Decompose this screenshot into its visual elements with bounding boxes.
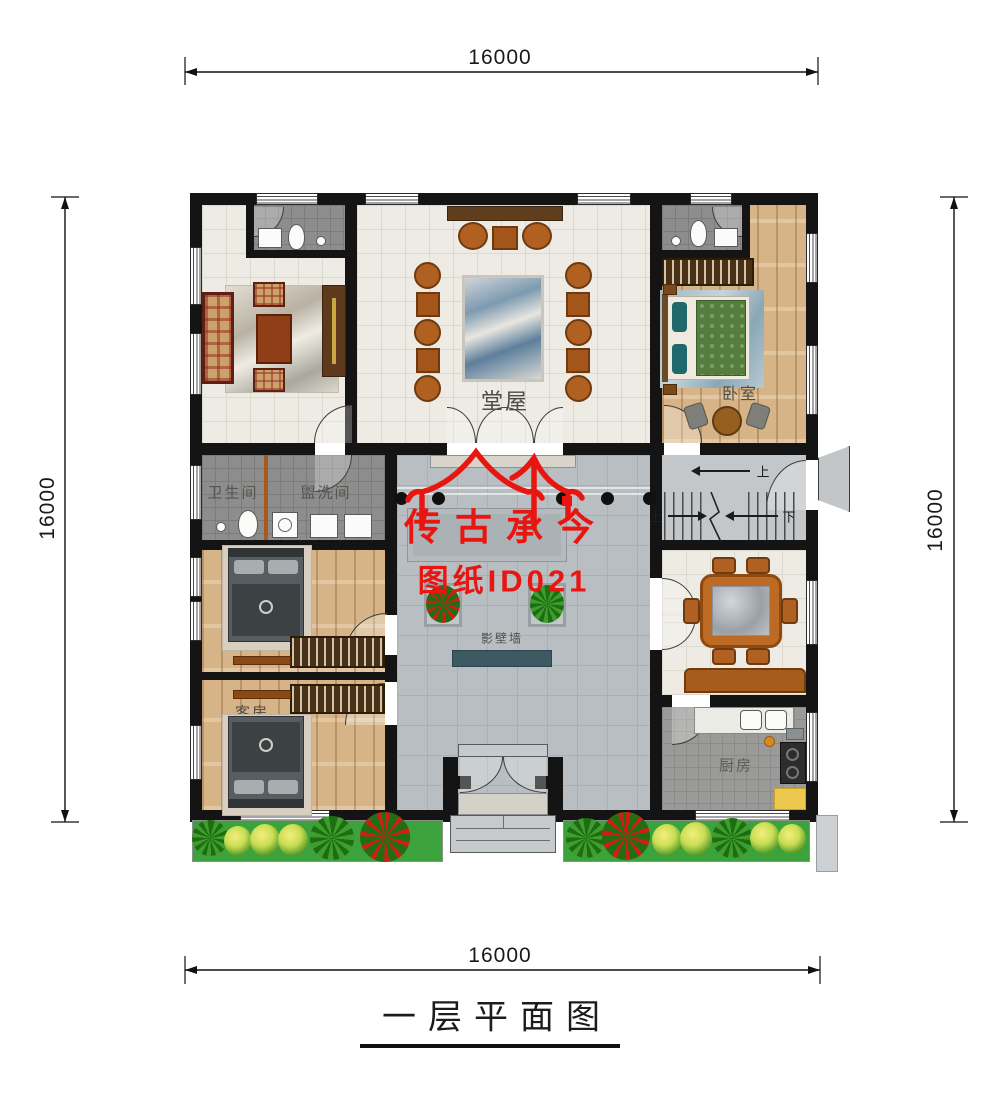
side-table	[416, 348, 440, 373]
pillow	[234, 560, 264, 574]
hall-rug	[462, 275, 544, 382]
plant-icon	[310, 816, 354, 860]
wall-mid-1	[190, 443, 315, 455]
kitchen-mat	[774, 788, 806, 810]
dim-left-value: 16000	[36, 476, 60, 539]
toilet-icon	[238, 510, 258, 538]
shrub-icon	[224, 826, 252, 856]
window	[256, 193, 318, 205]
column-dot	[643, 492, 656, 505]
nightstand	[663, 284, 677, 295]
armchair	[253, 368, 285, 392]
flower-plant-icon	[360, 812, 410, 862]
ensuite-left-wall-h	[246, 250, 345, 258]
toilet-icon	[288, 224, 305, 250]
shrub-icon	[250, 824, 280, 856]
stove-burner	[786, 766, 799, 779]
plant-icon	[712, 818, 752, 858]
dim-bottom-value: 16000	[468, 944, 531, 968]
main-hall-label: 堂屋	[481, 384, 529, 416]
gate-jamb-right	[548, 757, 563, 819]
round-table	[712, 406, 742, 436]
sink-icon	[310, 514, 338, 538]
shrub-icon	[278, 824, 308, 856]
kitchen-label: 厨房	[719, 755, 753, 776]
gate-center-line	[503, 816, 504, 828]
gate-jamb-left	[443, 757, 458, 819]
stair-arrow-down	[734, 515, 778, 517]
wall-mid-4	[700, 443, 818, 455]
pillow	[268, 780, 298, 794]
pillow	[672, 302, 687, 332]
side-table	[566, 348, 590, 373]
coffee-table	[256, 314, 292, 364]
dining-chair	[712, 648, 736, 665]
shower-icon	[316, 236, 326, 246]
window	[806, 580, 818, 645]
bed-emblem	[259, 738, 273, 752]
hall-chair	[565, 319, 592, 346]
pillow	[672, 344, 687, 374]
hall-chair	[414, 262, 441, 289]
side-porch	[818, 446, 850, 512]
stove-burner	[786, 748, 799, 761]
sink-icon	[344, 514, 372, 538]
wall-stairs-bottom	[650, 540, 818, 550]
bed-headboard	[662, 294, 668, 382]
bed-headboard	[228, 799, 304, 808]
sink-icon	[714, 228, 738, 247]
gate-threshold	[458, 793, 548, 815]
side-table	[416, 292, 440, 317]
nightstand	[663, 384, 677, 395]
window	[190, 601, 202, 641]
ensuite-right-wall-h	[662, 250, 750, 258]
window	[190, 465, 202, 520]
toilet-icon	[690, 220, 707, 247]
bedroom-label: 卧室	[722, 380, 758, 404]
dining-chair	[746, 557, 770, 574]
window	[190, 247, 202, 305]
window	[365, 193, 419, 205]
hall-chair	[565, 375, 592, 402]
bath-washroom-divider	[264, 455, 268, 540]
stair-arrow-up-flight	[668, 515, 698, 517]
hall-chair	[414, 319, 441, 346]
bed-blanket	[696, 300, 746, 376]
floor-plan-sheet: 16000 16000 16000 16000	[0, 0, 1000, 1097]
sideboard	[684, 668, 806, 693]
kitchen-appliance	[786, 728, 804, 740]
hall-chair	[414, 375, 441, 402]
window	[806, 345, 818, 415]
page-title: 一层平面图	[382, 990, 612, 1039]
dining-chair	[712, 557, 736, 574]
window	[577, 193, 631, 205]
wardrobe-icon	[662, 258, 754, 286]
bench	[233, 690, 291, 699]
plant-icon	[566, 818, 606, 858]
side-table	[566, 292, 590, 317]
washroom-label: 盥洗间	[300, 482, 351, 503]
hall-chair	[458, 222, 488, 250]
flower-plant-icon	[602, 812, 650, 860]
pillow	[234, 780, 264, 794]
shrub-icon	[652, 824, 682, 856]
hall-chair	[565, 262, 592, 289]
sofa	[202, 292, 234, 384]
title-underline	[360, 1044, 620, 1048]
stair-up-main-label: 上	[756, 462, 769, 481]
wall-bed2-guest	[190, 672, 397, 680]
dining-table-top	[712, 586, 770, 636]
shrub-icon	[680, 822, 712, 856]
sheet-id-watermark: 图纸ID021	[418, 556, 591, 601]
console-table	[447, 206, 563, 221]
wall-dining-kitchen-b	[710, 695, 818, 707]
gate-step-line	[456, 828, 550, 829]
screen-wall-label: 影壁墙	[481, 630, 523, 647]
armchair	[253, 282, 285, 307]
bed-headboard	[228, 548, 304, 557]
sink-icon	[258, 228, 282, 248]
screen-wall	[452, 650, 552, 667]
window	[190, 557, 202, 597]
floor-drain-icon	[216, 522, 226, 532]
fruit-bowl-icon	[764, 736, 775, 747]
shrub-icon	[778, 824, 806, 854]
window	[190, 725, 202, 780]
bed-emblem	[259, 600, 273, 614]
brand-watermark: 传古承今	[404, 497, 608, 551]
window	[806, 233, 818, 283]
gate-step-line	[456, 840, 550, 841]
washing-machine-drum	[278, 518, 292, 532]
window	[190, 333, 202, 395]
wall-dining-kitchen-a	[650, 695, 672, 707]
wardrobe-icon	[290, 636, 385, 668]
paving-corner	[816, 815, 838, 872]
window	[690, 193, 732, 205]
bathroom-label: 卫生间	[207, 482, 258, 503]
plant-icon	[192, 820, 228, 856]
dining-chair	[683, 598, 700, 624]
dim-right-value: 16000	[924, 488, 948, 551]
wardrobe-icon	[290, 684, 385, 714]
shower-icon	[671, 236, 681, 246]
tv-screen	[332, 298, 336, 364]
stair-down-label: 下	[782, 507, 795, 526]
pillow	[268, 560, 298, 574]
wall-rightwing-left-b	[650, 650, 662, 822]
kitchen-sink-icon	[765, 710, 787, 730]
dining-chair	[746, 648, 770, 665]
stair-arrow-up-main	[700, 470, 750, 472]
dining-chair	[781, 598, 798, 624]
hall-chair	[522, 222, 552, 250]
window	[806, 712, 818, 782]
gate-top-step	[458, 744, 548, 757]
dim-top-value: 16000	[468, 46, 531, 70]
wall-leftwing-right-c	[385, 725, 397, 822]
kitchen-sink-icon	[740, 710, 762, 730]
tea-table	[492, 226, 518, 250]
stair-up-flight-label: 上	[649, 507, 662, 526]
bench	[233, 656, 291, 665]
shrub-icon	[750, 822, 780, 854]
